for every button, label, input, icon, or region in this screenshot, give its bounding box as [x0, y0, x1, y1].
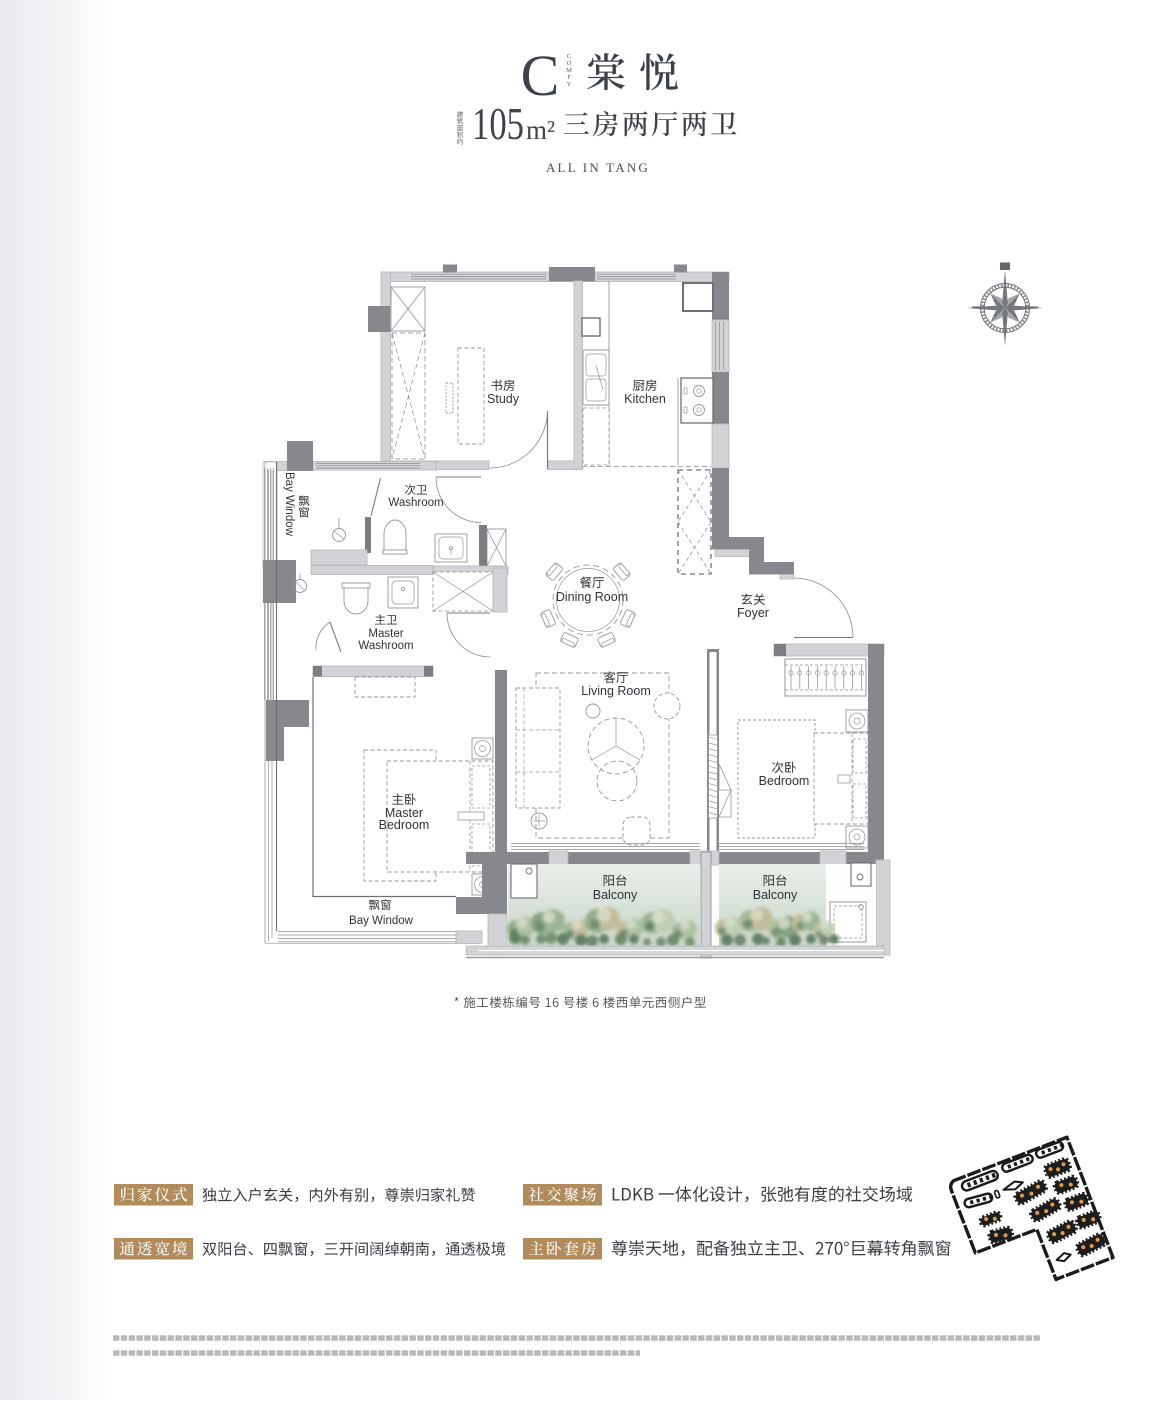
svg-text:ALL IN TANG: ALL IN TANG: [546, 160, 650, 175]
svg-text:Living Room: Living Room: [581, 684, 650, 698]
svg-text:Balcony: Balcony: [753, 888, 798, 902]
svg-text:Kitchen: Kitchen: [624, 392, 666, 406]
svg-text:Study: Study: [487, 392, 520, 406]
svg-text:Balcony: Balcony: [593, 888, 638, 902]
svg-text:m²: m²: [526, 115, 555, 145]
svg-text:Bedroom: Bedroom: [379, 818, 430, 832]
svg-text:Washroom: Washroom: [388, 497, 443, 509]
svg-text:Bedroom: Bedroom: [759, 774, 810, 788]
svg-text:Dining Room: Dining Room: [556, 590, 628, 604]
svg-text:Bay Window: Bay Window: [349, 915, 414, 927]
svg-text:Master: Master: [368, 628, 403, 640]
svg-text:105: 105: [472, 99, 524, 149]
svg-text:C: C: [521, 43, 560, 108]
svg-text:Washroom: Washroom: [358, 640, 413, 652]
svg-text:Bay Window: Bay Window: [283, 472, 295, 537]
svg-text:Foyer: Foyer: [737, 606, 769, 620]
